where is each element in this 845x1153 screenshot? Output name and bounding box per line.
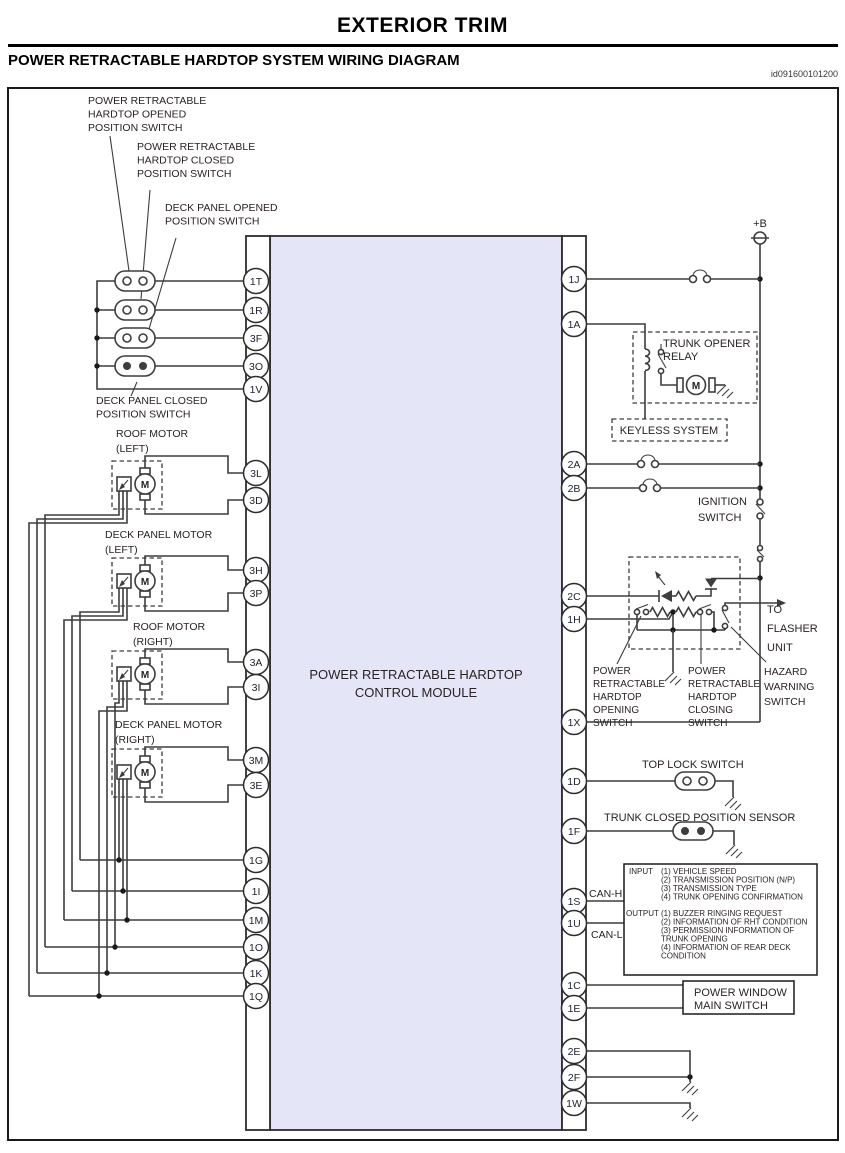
svg-text:UNIT: UNIT	[767, 642, 793, 654]
svg-text:HARDTOP CLOSED: HARDTOP CLOSED	[137, 155, 234, 167]
svg-text:HARDTOP: HARDTOP	[593, 692, 642, 703]
pin-3O: 3O	[244, 354, 269, 379]
hardtop-closed-position-switch	[115, 300, 155, 320]
svg-text:(4) TRUNK OPENING CONFIRMATION: (4) TRUNK OPENING CONFIRMATION	[661, 893, 803, 902]
svg-text:1I: 1I	[252, 886, 261, 898]
svg-text:POSITION SWITCH: POSITION SWITCH	[96, 409, 191, 421]
svg-text:2A: 2A	[568, 459, 581, 471]
control-module	[270, 236, 562, 1130]
svg-text:3I: 3I	[252, 682, 261, 694]
pin-1G: 1G	[244, 848, 269, 873]
svg-text:SWITCH: SWITCH	[688, 718, 727, 729]
deck-panel-closed-position-switch	[115, 356, 155, 376]
pin-2A: 2A	[562, 452, 587, 477]
pin-1F: 1F	[562, 819, 587, 844]
svg-text:2F: 2F	[568, 1072, 580, 1084]
deck-motor-right-label: DECK PANEL MOTOR	[115, 719, 223, 731]
can-l-label: CAN-L	[591, 929, 623, 941]
pin-3A: 3A	[244, 650, 269, 675]
svg-text:3A: 3A	[250, 657, 263, 669]
resistor-icon	[676, 592, 696, 601]
pin-3E: 3E	[244, 773, 269, 798]
power-window-label: POWER WINDOW	[694, 987, 787, 999]
svg-text:1V: 1V	[250, 384, 263, 396]
pin-1R: 1R	[244, 298, 269, 323]
pin-3F: 3F	[244, 326, 269, 351]
svg-text:1G: 1G	[249, 855, 263, 867]
svg-text:1O: 1O	[249, 942, 263, 954]
pin-3H: 3H	[244, 558, 269, 583]
svg-text:SWITCH: SWITCH	[764, 696, 805, 708]
svg-text:M: M	[141, 577, 149, 588]
sensor-bus-wiring	[29, 857, 244, 998]
svg-text:(RIGHT): (RIGHT)	[115, 734, 155, 746]
pin-2E: 2E	[562, 1039, 587, 1064]
svg-text:(RIGHT): (RIGHT)	[133, 636, 173, 648]
resistor-icon	[650, 608, 670, 617]
relay-coil-icon	[645, 349, 650, 371]
pin-2C: 2C	[562, 584, 587, 609]
svg-text:1U: 1U	[567, 918, 580, 930]
roof-motor-left-label: ROOF MOTOR	[116, 428, 189, 440]
fuse-1j	[587, 270, 761, 283]
svg-text:1K: 1K	[250, 968, 263, 980]
svg-text:1C: 1C	[567, 980, 581, 992]
hardtop-opened-position-switch	[115, 271, 155, 291]
svg-text:SWITCH: SWITCH	[698, 512, 741, 524]
svg-text:2C: 2C	[567, 591, 581, 603]
pin-1C: 1C	[562, 973, 587, 998]
ignition-switch: IGNITION SWITCH	[698, 496, 765, 562]
led-icon	[661, 590, 672, 602]
can-io-box: CAN-H CAN-L INPUT (1) VEHICLE SPEED (2) …	[587, 864, 818, 975]
svg-text:M: M	[141, 768, 149, 779]
svg-text:1F: 1F	[568, 826, 580, 838]
can-h-label: CAN-H	[589, 888, 622, 900]
pin-1H: 1H	[562, 607, 587, 632]
ground-icon	[682, 1108, 698, 1121]
resistor-icon	[676, 608, 696, 617]
pin-1W: 1W	[562, 1091, 587, 1116]
svg-text:RELAY: RELAY	[663, 351, 699, 363]
diode-icon	[705, 579, 717, 588]
pin-2B: 2B	[562, 476, 587, 501]
pin-2F: 2F	[562, 1065, 587, 1090]
svg-text:1S: 1S	[568, 896, 581, 908]
svg-text:(LEFT): (LEFT)	[116, 443, 149, 455]
hazard-switch-icon	[722, 610, 729, 623]
pin-1D: 1D	[562, 769, 587, 794]
top-lock-label: TOP LOCK SWITCH	[642, 759, 744, 771]
module-label: POWER RETRACTABLE HARDTOP	[309, 667, 522, 682]
svg-text:3M: 3M	[249, 755, 264, 767]
svg-text:3L: 3L	[250, 468, 262, 480]
pin-1O: 1O	[244, 935, 269, 960]
can-input-label: INPUT	[629, 867, 653, 876]
hardtop-closed-label: POWER RETRACTABLE	[137, 141, 255, 153]
keyless-label: KEYLESS SYSTEM	[620, 425, 718, 437]
pin-3L: 3L	[244, 461, 269, 486]
svg-text:(LEFT): (LEFT)	[105, 544, 138, 556]
opening-switch-icon	[636, 605, 648, 610]
roof-motor-right: M	[99, 649, 244, 996]
pin-1K: 1K	[244, 961, 269, 986]
svg-text:M: M	[692, 381, 700, 392]
svg-text:1Q: 1Q	[249, 991, 263, 1003]
pin-3P: 3P	[244, 581, 269, 606]
pin-1A: 1A	[562, 312, 587, 337]
svg-text:POSITION SWITCH: POSITION SWITCH	[88, 122, 183, 134]
svg-text:1X: 1X	[568, 717, 581, 729]
pin-3D: 3D	[244, 488, 269, 513]
svg-text:3E: 3E	[250, 780, 263, 792]
svg-text:MAIN SWITCH: MAIN SWITCH	[694, 1000, 768, 1012]
ground-icon	[665, 672, 681, 685]
svg-text:M: M	[141, 670, 149, 681]
ground-icon	[717, 385, 733, 398]
svg-text:1E: 1E	[568, 1003, 581, 1015]
svg-text:HARDTOP OPENED: HARDTOP OPENED	[88, 109, 187, 121]
top-lock-switch: TOP LOCK SWITCH	[587, 759, 744, 810]
ground-icon	[726, 845, 742, 858]
ignition-label: IGNITION	[698, 496, 747, 508]
svg-text:OPENING: OPENING	[593, 705, 639, 716]
svg-text:POSITION SWITCH: POSITION SWITCH	[137, 168, 232, 180]
pin-1X: 1X	[562, 710, 587, 735]
pin-1V: 1V	[244, 377, 269, 402]
svg-text:FLASHER: FLASHER	[767, 623, 818, 635]
trunk-closed-position-sensor: TRUNK CLOSED POSITION SENSOR	[587, 812, 796, 858]
opening-switch-label: POWER	[593, 666, 631, 677]
deck-motor-left-label: DECK PANEL MOTOR	[105, 529, 213, 541]
svg-text:1H: 1H	[567, 614, 580, 626]
flasher-label: TO	[767, 604, 783, 616]
pin-1U: 1U	[562, 911, 587, 936]
svg-text:3P: 3P	[250, 588, 263, 600]
svg-text:1W: 1W	[566, 1098, 582, 1110]
pin-1I: 1I	[244, 879, 269, 904]
svg-text:M: M	[141, 480, 149, 491]
pin-3M: 3M	[244, 748, 269, 773]
wiring-diagram: M M M	[0, 0, 845, 1153]
hazard-switch-label: HAZARD	[764, 666, 808, 678]
deck-panel-motor-right: M	[112, 747, 244, 920]
leader-hardtop-opened	[110, 136, 129, 271]
cluster-labels: TO FLASHER UNIT POWER RETRACTABLE HARDTO…	[593, 604, 818, 729]
svg-text:POSITION SWITCH: POSITION SWITCH	[165, 216, 260, 228]
svg-text:1R: 1R	[249, 305, 263, 317]
svg-text:1M: 1M	[249, 915, 264, 927]
svg-text:CLOSING: CLOSING	[688, 705, 733, 716]
svg-text:HARDTOP: HARDTOP	[688, 692, 737, 703]
fuse-2a	[587, 455, 761, 468]
can-output-label: OUTPUT	[626, 909, 659, 918]
manual-page: EXTERIOR TRIM POWER RETRACTABLE HARDTOP …	[0, 0, 845, 1153]
svg-text:3O: 3O	[249, 361, 263, 373]
closing-switch-label: POWER	[688, 666, 726, 677]
fuse-2b	[587, 479, 761, 492]
pin-1T: 1T	[244, 269, 269, 294]
svg-text:2B: 2B	[568, 483, 581, 495]
pin-1E: 1E	[562, 996, 587, 1021]
svg-text:1J: 1J	[568, 274, 579, 286]
roof-motor-right-label: ROOF MOTOR	[133, 621, 206, 633]
svg-text:2E: 2E	[568, 1046, 581, 1058]
ground-icon	[682, 1082, 698, 1095]
deck-panel-opened-position-switch	[115, 328, 155, 348]
svg-text:RETRACTABLE: RETRACTABLE	[593, 679, 665, 690]
closing-switch-icon	[699, 605, 711, 610]
power-window-main-switch: POWER WINDOW MAIN SWITCH	[587, 981, 795, 1014]
svg-text:WARNING: WARNING	[764, 681, 814, 693]
svg-text:3H: 3H	[249, 565, 262, 577]
pin-1M: 1M	[244, 908, 269, 933]
svg-text:1T: 1T	[250, 276, 263, 288]
svg-text:CONTROL MODULE: CONTROL MODULE	[355, 685, 478, 700]
plus-b-label: +B	[753, 218, 767, 230]
trunk-opener-relay: M TRUNK OPENER RELAY	[587, 324, 758, 419]
keyless-system: KEYLESS SYSTEM	[612, 419, 727, 441]
svg-text:1D: 1D	[567, 776, 581, 788]
ground-icon	[725, 797, 741, 810]
pin-1J: 1J	[562, 267, 587, 292]
deck-opened-label: DECK PANEL OPENED	[165, 202, 278, 214]
trunk-relay-label: TRUNK OPENER	[663, 338, 750, 350]
svg-text:SWITCH: SWITCH	[593, 718, 632, 729]
hardtop-opened-label: POWER RETRACTABLE	[88, 95, 206, 107]
ground-wires	[587, 1051, 699, 1121]
svg-text:RETRACTABLE: RETRACTABLE	[688, 679, 760, 690]
pin-3I: 3I	[244, 675, 269, 700]
svg-text:CONDITION: CONDITION	[661, 952, 706, 961]
svg-text:1A: 1A	[568, 319, 581, 331]
svg-text:3F: 3F	[250, 333, 262, 345]
svg-text:3D: 3D	[249, 495, 263, 507]
deck-closed-label: DECK PANEL CLOSED	[96, 395, 208, 407]
pin-1Q: 1Q	[244, 984, 269, 1009]
